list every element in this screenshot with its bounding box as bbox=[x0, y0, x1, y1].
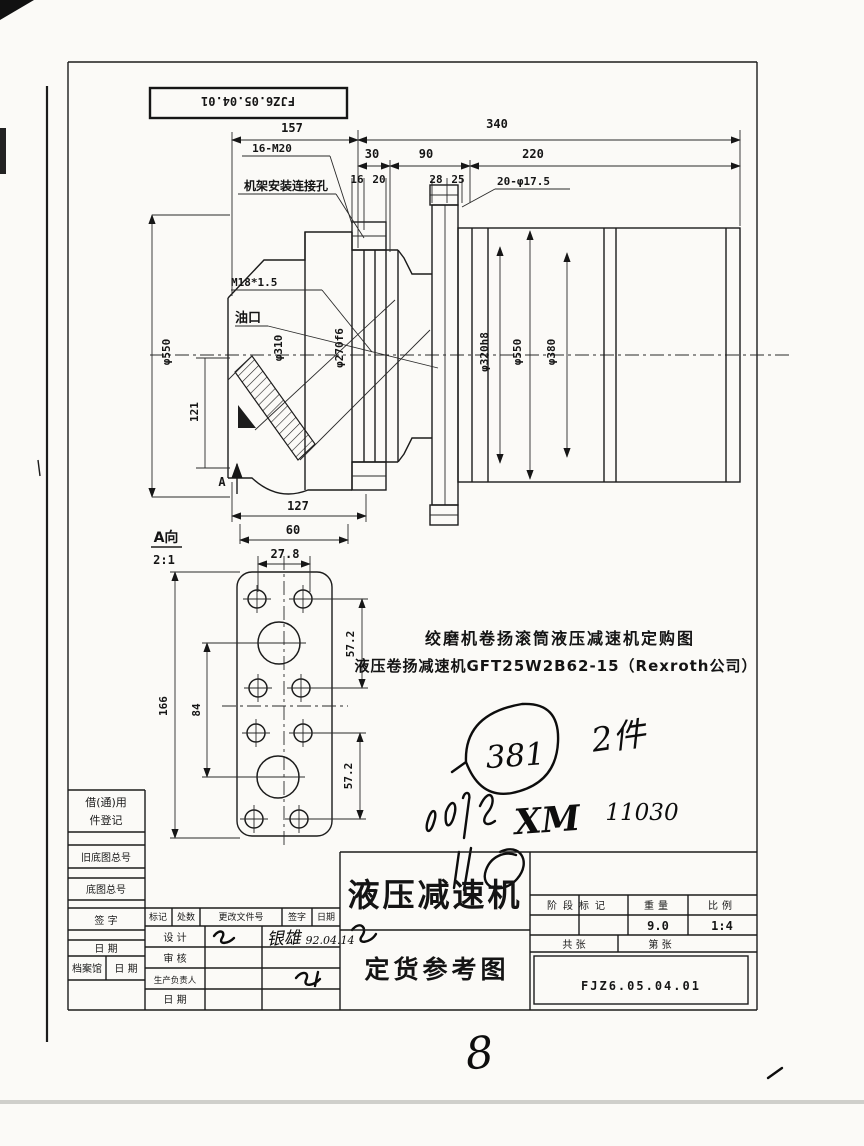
dim-28: 28 bbox=[429, 173, 442, 186]
drum-diameter-dims: φ320h8 φ550 φ380 bbox=[478, 231, 567, 479]
sheet-no: 第 张 bbox=[648, 938, 671, 951]
dim-166: 166 bbox=[157, 696, 170, 716]
bottom-dimensions: 127 60 bbox=[232, 482, 366, 544]
note-line2: 液压卷扬减速机GFT25W2B62-15（Rexroth公司） bbox=[354, 657, 757, 675]
borrow-reg-line2: 件登记 bbox=[90, 813, 123, 827]
scale-label: 比例 bbox=[708, 899, 736, 912]
hdr-date: 日期 bbox=[317, 912, 335, 923]
frame-holes-callout: 机架安装连接孔 bbox=[244, 178, 328, 193]
left-sign-label: 签 字 bbox=[94, 914, 117, 927]
margin-tick bbox=[38, 460, 40, 476]
thread-callout: M18*1.5 bbox=[231, 276, 277, 289]
top-dimensions: 157 340 30 90 220 16 20 28 25 20-φ17.5 bbox=[232, 117, 740, 296]
dim-121: 121 bbox=[188, 358, 230, 468]
handwritten-circled-number: 381 bbox=[485, 736, 547, 776]
archive-label: 档案馆 bbox=[72, 962, 102, 975]
flange-holes bbox=[240, 585, 317, 833]
svg-text:121: 121 bbox=[188, 402, 201, 422]
base-drawing-no: 底图总号 bbox=[86, 883, 126, 896]
handwritten-signature: 银雄 bbox=[266, 928, 303, 950]
dim-157: 157 bbox=[281, 121, 303, 135]
left-diameter-dim: φ550 bbox=[152, 215, 230, 497]
stage-label: 阶段标记 bbox=[547, 899, 611, 912]
corner-tick-mark bbox=[768, 1068, 782, 1078]
dim-90: 90 bbox=[419, 147, 433, 161]
sheets-total: 共 张 bbox=[562, 939, 585, 951]
handwritten-quantity: 2件 bbox=[588, 713, 651, 760]
scale-value: 1:4 bbox=[711, 919, 733, 933]
dim-dia-hub: φ310 bbox=[272, 335, 285, 362]
dim-127: 127 bbox=[287, 499, 309, 513]
dim-27.8: 27.8 bbox=[271, 547, 300, 561]
title-block-right: 阶段标记 重量 比例 9.0 1:4 共 张 第 张 FJZ6.05.04.01 bbox=[530, 895, 757, 1004]
bolt-callout: 16-M20 bbox=[252, 142, 292, 155]
detail-title: A向 bbox=[154, 529, 179, 546]
title-block-left-strip: 借(通)用 件登记 旧底图总号 底图总号 签 字 日 期 档案馆 日 期 bbox=[68, 790, 145, 1010]
hdr-file-no: 更改文件号 bbox=[218, 911, 263, 923]
dim-340: 340 bbox=[486, 117, 508, 131]
svg-text:A: A bbox=[218, 475, 226, 489]
dim-dia-drum: φ550 bbox=[511, 339, 524, 366]
handwritten-after-sign-scribble bbox=[352, 925, 376, 941]
main-view: φ320h8 φ550 φ380 φ310 φ270f6 φ550 121 bbox=[150, 117, 790, 544]
neck-outline bbox=[398, 250, 432, 462]
dim-dia-end: φ380 bbox=[545, 339, 558, 366]
hdr-count: 处数 bbox=[177, 911, 195, 923]
handwritten-cell-scribble bbox=[214, 932, 234, 943]
role-date: 日 期 bbox=[163, 994, 186, 1006]
title-block-change-roles: 标记 处数 更改文件号 签字 日期 设 计 审 核 生产负责人 日 期 银雄 9… bbox=[145, 908, 376, 1010]
role-design: 设 计 bbox=[163, 931, 186, 944]
order-notes: 绞磨机卷扬滚筒液压减速机定购图 液压卷扬减速机GFT25W2B62-15（Rex… bbox=[354, 629, 757, 675]
dim-220: 220 bbox=[522, 147, 544, 161]
engineering-drawing: FJZ6.05.04.01 bbox=[0, 0, 864, 1146]
left-date-label: 日 期 bbox=[94, 943, 117, 955]
scanned-drawing-sheet: FJZ6.05.04.01 bbox=[0, 0, 864, 1146]
section-wedge bbox=[238, 405, 256, 428]
hdr-sign: 签字 bbox=[288, 911, 306, 923]
role-production: 生产负责人 bbox=[154, 975, 197, 986]
drawing-type: 定货参考图 bbox=[364, 955, 509, 984]
product-name: 液压减速机 bbox=[347, 876, 522, 914]
handwritten-signature-2 bbox=[296, 972, 320, 986]
hdr-mark: 标记 bbox=[149, 911, 167, 923]
detail-view-A: A向 2:1 bbox=[151, 529, 368, 848]
handwritten-code-number: 11030 bbox=[605, 800, 678, 826]
handwritten-sign-date: 92.04.14 bbox=[306, 934, 355, 947]
detail-dimensions: 27.8 166 84 57.2 57.2 bbox=[157, 547, 368, 838]
drawing-number-stamp: FJZ6.05.04.01 bbox=[150, 88, 347, 118]
handwritten-scribble bbox=[427, 793, 495, 838]
handwritten-sheet-number: 8 bbox=[463, 1027, 496, 1081]
section-hatch-band bbox=[235, 356, 315, 460]
dim-60: 60 bbox=[286, 523, 300, 537]
stamp-number: FJZ6.05.04.01 bbox=[201, 94, 295, 108]
dim-57.2-bottom: 57.2 bbox=[342, 763, 355, 790]
borrow-reg-line1: 借(通)用 bbox=[85, 796, 127, 809]
dim-dia-left: φ550 bbox=[160, 339, 173, 366]
weight-label: 重量 bbox=[644, 899, 672, 912]
holes-callout: 20-φ17.5 bbox=[497, 175, 550, 188]
dim-16: 16 bbox=[350, 173, 364, 186]
dim-57.2-top: 57.2 bbox=[344, 631, 357, 658]
detail-scale: 2:1 bbox=[153, 553, 175, 567]
archive-date-label: 日 期 bbox=[114, 963, 137, 975]
note-line1: 绞磨机卷扬滚筒液压减速机定购图 bbox=[425, 629, 695, 648]
weight-value: 9.0 bbox=[647, 919, 669, 933]
handwritten-code: XM bbox=[511, 798, 583, 844]
drawing-number: FJZ6.05.04.01 bbox=[581, 979, 701, 993]
dim-dia-drum-fit: φ320h8 bbox=[478, 332, 491, 372]
oil-port-callout: 油口 bbox=[235, 310, 261, 326]
role-audit: 审 核 bbox=[163, 952, 186, 965]
old-base-drawing-no: 旧底图总号 bbox=[81, 851, 131, 864]
dim-84: 84 bbox=[190, 703, 203, 717]
dim-30: 30 bbox=[365, 147, 379, 161]
dim-20: 20 bbox=[372, 173, 385, 186]
dim-25: 25 bbox=[451, 173, 464, 186]
